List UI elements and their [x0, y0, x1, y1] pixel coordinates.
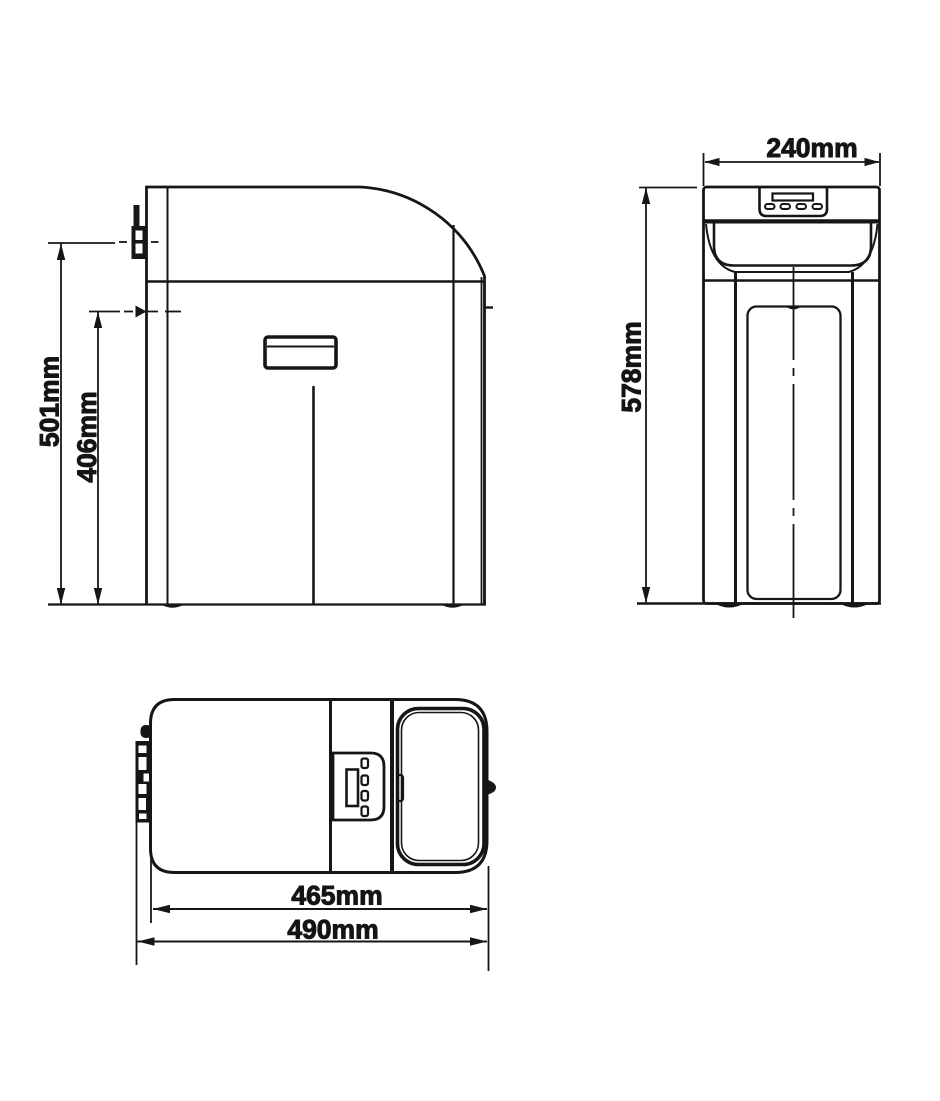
svg-text:465mm: 465mm	[291, 881, 382, 911]
svg-text:406mm: 406mm	[72, 391, 102, 482]
svg-text:490mm: 490mm	[287, 915, 378, 945]
svg-text:578mm: 578mm	[617, 321, 647, 412]
svg-text:501mm: 501mm	[35, 356, 65, 447]
svg-text:240mm: 240mm	[766, 133, 857, 163]
